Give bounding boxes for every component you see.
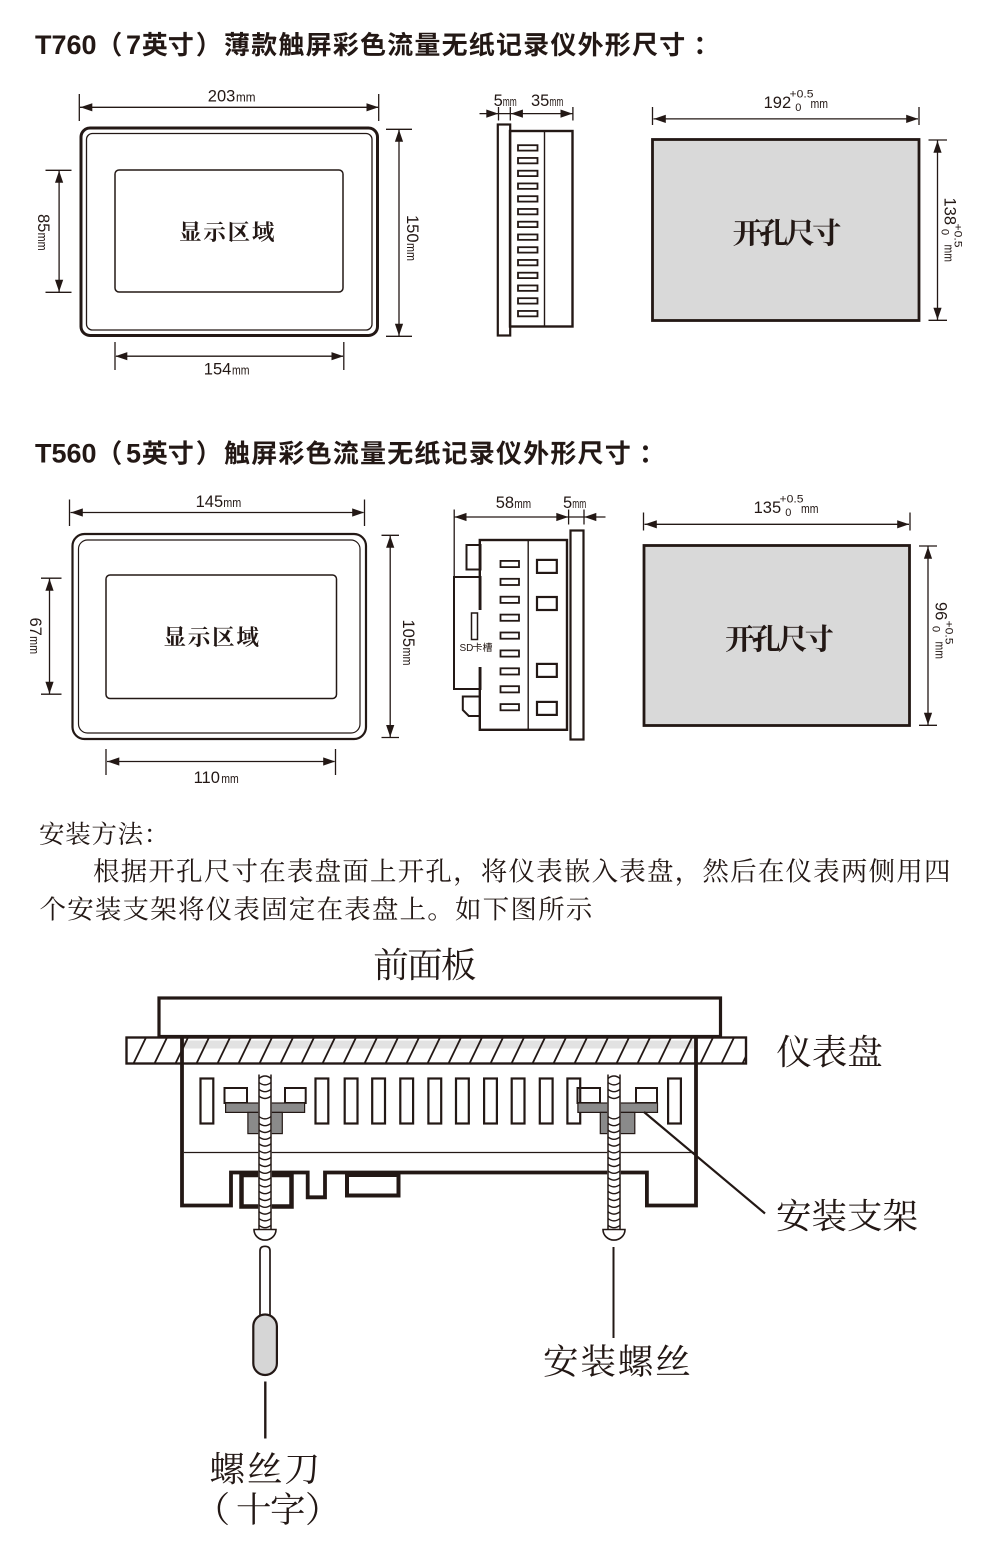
svg-text:T560: T560 [35, 439, 97, 469]
svg-text:mm: mm [27, 636, 42, 654]
svg-text:T760: T760 [35, 30, 97, 60]
svg-text:+0.5: +0.5 [780, 494, 804, 506]
svg-text:58: 58 [496, 494, 514, 512]
svg-text:5: 5 [494, 92, 503, 110]
svg-text:SD: SD [460, 643, 474, 654]
svg-text:0: 0 [939, 229, 951, 235]
svg-text:mm: mm [232, 363, 250, 378]
svg-text:145: 145 [196, 493, 224, 511]
svg-text:110: 110 [194, 769, 220, 787]
svg-text:mm: mm [404, 243, 419, 261]
svg-text:mm: mm [221, 771, 239, 786]
svg-text:105: 105 [399, 620, 417, 648]
svg-text:67: 67 [26, 618, 44, 636]
svg-text:mm: mm [933, 642, 948, 660]
svg-text:mm: mm [236, 90, 256, 105]
svg-text:35: 35 [531, 92, 549, 110]
svg-text:85: 85 [34, 214, 52, 232]
svg-text:0: 0 [795, 102, 801, 114]
svg-text:mm: mm [400, 648, 415, 666]
svg-text:150: 150 [403, 215, 421, 243]
svg-text:mm: mm [514, 496, 531, 511]
svg-text:96: 96 [932, 602, 950, 620]
svg-text:mm: mm [549, 94, 563, 109]
svg-text:mm: mm [942, 245, 957, 263]
svg-text:138: 138 [941, 198, 959, 226]
svg-text:mm: mm [572, 496, 586, 511]
svg-text:192: 192 [764, 94, 792, 112]
svg-text:5: 5 [563, 494, 572, 512]
svg-text:135: 135 [754, 499, 782, 517]
svg-text:7: 7 [126, 30, 141, 60]
svg-text:mm: mm [811, 96, 829, 111]
svg-text:203: 203 [208, 88, 236, 106]
svg-text:0: 0 [785, 507, 791, 519]
svg-text:mm: mm [223, 495, 241, 510]
svg-text:5: 5 [126, 439, 141, 469]
svg-text:mm: mm [503, 94, 517, 109]
svg-text:0: 0 [930, 626, 942, 632]
svg-text:mm: mm [801, 501, 819, 516]
svg-text:mm: mm [35, 233, 50, 251]
svg-text:154: 154 [204, 361, 232, 379]
